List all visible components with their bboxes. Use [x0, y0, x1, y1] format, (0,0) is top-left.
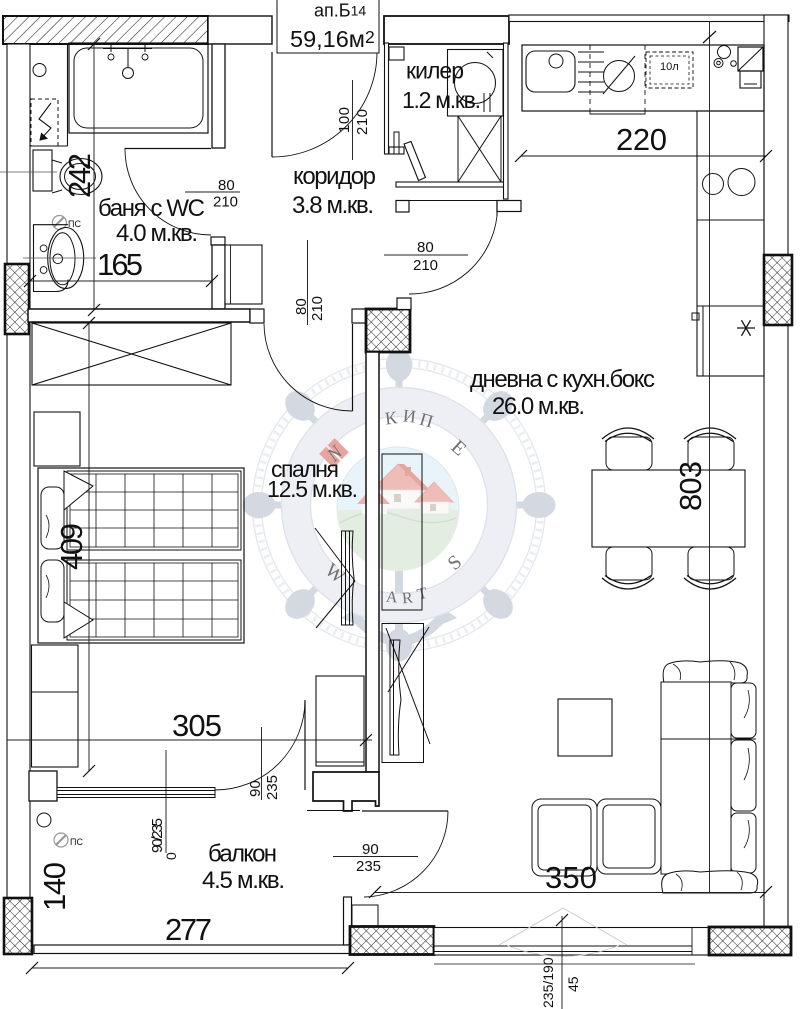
svg-text:350: 350 — [545, 860, 597, 895]
svg-text:100: 100 — [336, 107, 353, 133]
svg-text:3.8 м.кв.: 3.8 м.кв. — [292, 192, 374, 219]
svg-text:балкон: балкон — [208, 841, 277, 868]
svg-text:10л: 10л — [660, 61, 679, 73]
svg-text:12.5 м.кв.: 12.5 м.кв. — [267, 476, 358, 502]
svg-text:80: 80 — [293, 298, 310, 315]
svg-text:409: 409 — [54, 523, 89, 570]
svg-text:803: 803 — [673, 461, 708, 511]
svg-text:И: И — [402, 405, 417, 426]
svg-text:210: 210 — [354, 109, 371, 135]
svg-text:дневна с кухн.бокс: дневна с кухн.бокс — [470, 366, 655, 393]
svg-text:баня с WC: баня с WC — [98, 195, 205, 222]
svg-text:80: 80 — [417, 239, 434, 256]
svg-text:ап.Б14: ап.Б14 — [314, 1, 366, 21]
svg-text:0: 0 — [163, 852, 179, 860]
svg-text:1.2 м.кв.: 1.2 м.кв. — [402, 87, 481, 113]
svg-text:165: 165 — [97, 247, 143, 282]
svg-text:90: 90 — [247, 780, 264, 797]
svg-text:277: 277 — [165, 912, 212, 947]
svg-text:4.0 м.кв.: 4.0 м.кв. — [116, 220, 198, 247]
svg-text:242: 242 — [62, 153, 97, 198]
svg-text:305: 305 — [172, 708, 222, 743]
svg-text:26.0 м.кв.: 26.0 м.кв. — [492, 393, 585, 420]
svg-text:59,16м2: 59,16м2 — [290, 26, 375, 52]
svg-text:4.5 м.кв.: 4.5 м.кв. — [202, 867, 285, 894]
svg-text:80: 80 — [218, 177, 235, 194]
svg-text:45: 45 — [565, 976, 581, 992]
svg-text:90: 90 — [362, 841, 379, 858]
svg-text:220: 220 — [616, 122, 667, 157]
svg-text:235: 235 — [264, 775, 281, 800]
svg-text:235: 235 — [356, 858, 381, 875]
svg-text:ПС: ПС — [68, 219, 81, 229]
svg-text:210: 210 — [213, 194, 238, 211]
svg-text:210: 210 — [413, 257, 438, 274]
svg-text:235/190: 235/190 — [540, 957, 556, 1008]
svg-text:A: A — [385, 589, 398, 607]
svg-text:90/235: 90/235 — [149, 818, 166, 853]
svg-text:R: R — [401, 590, 413, 608]
svg-text:140: 140 — [37, 862, 72, 911]
svg-text:ПС: ПС — [70, 837, 83, 847]
svg-text:килер: килер — [406, 58, 464, 84]
svg-text:коридор: коридор — [293, 163, 376, 190]
svg-text:210: 210 — [309, 296, 326, 321]
